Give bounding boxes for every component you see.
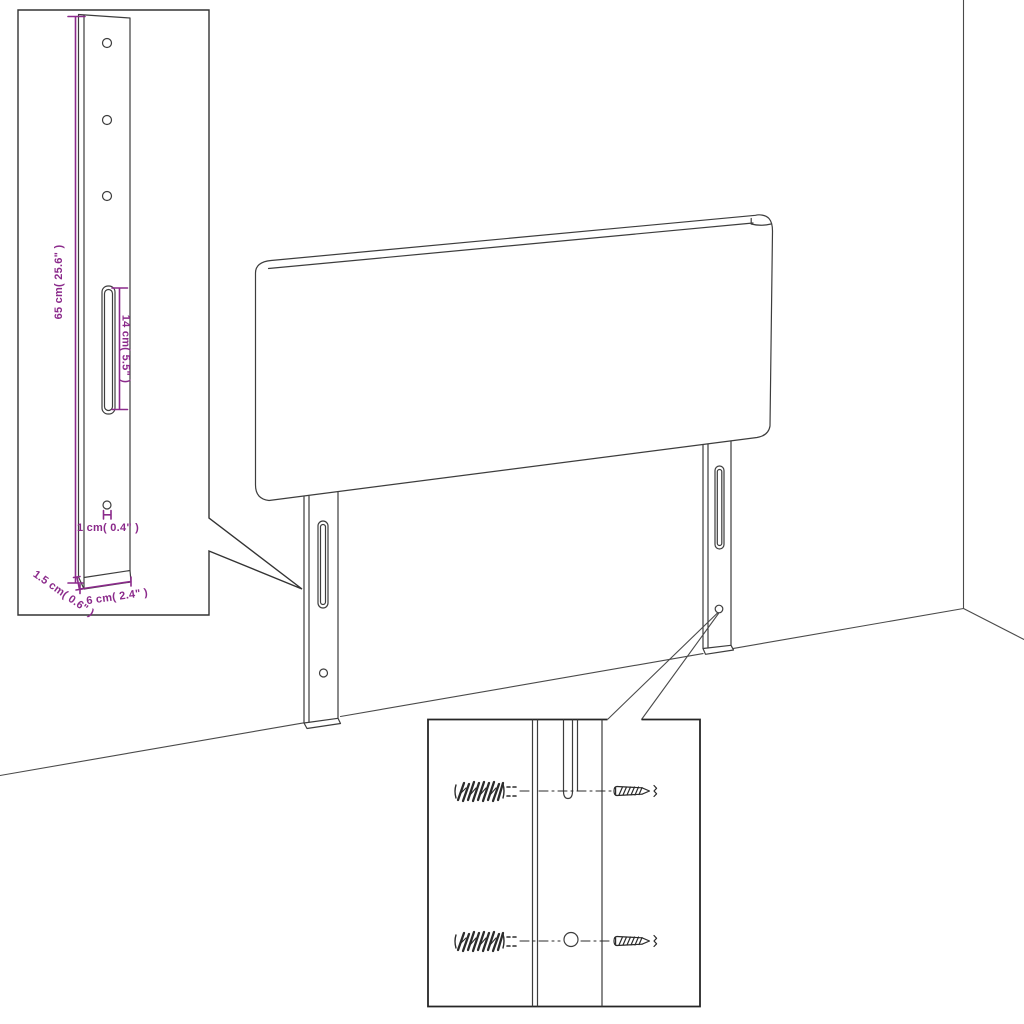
headboard-left-leg — [304, 486, 341, 729]
assembly-diagram: 65 cm( 25.6" ) 14 cm( 5.5" ) 1 cm( 0.4" … — [0, 0, 1024, 1024]
floor-line-right — [964, 609, 1024, 640]
headboard-right-leg — [703, 434, 734, 654]
dim-slot-label: 14 cm( 5.5" ) — [120, 315, 132, 383]
panel-top-inner-line — [269, 223, 754, 269]
panel-corner-tab — [751, 219, 771, 226]
headboard-panel — [256, 215, 773, 501]
hardware-inset — [428, 613, 719, 1007]
hardware-callout-lines — [608, 613, 719, 720]
diagram-canvas: 65 cm( 25.6" ) 14 cm( 5.5" ) 1 cm( 0.4" … — [0, 0, 1024, 1024]
dim-hole-label: 1 cm( 0.4" ) — [77, 522, 139, 534]
dim-height-label: 65 cm( 25.6" ) — [53, 245, 65, 320]
leg-detail-inset: 65 cm( 25.6" ) 14 cm( 5.5" ) 1 cm( 0.4" … — [18, 10, 302, 619]
panel-outline — [256, 215, 773, 501]
